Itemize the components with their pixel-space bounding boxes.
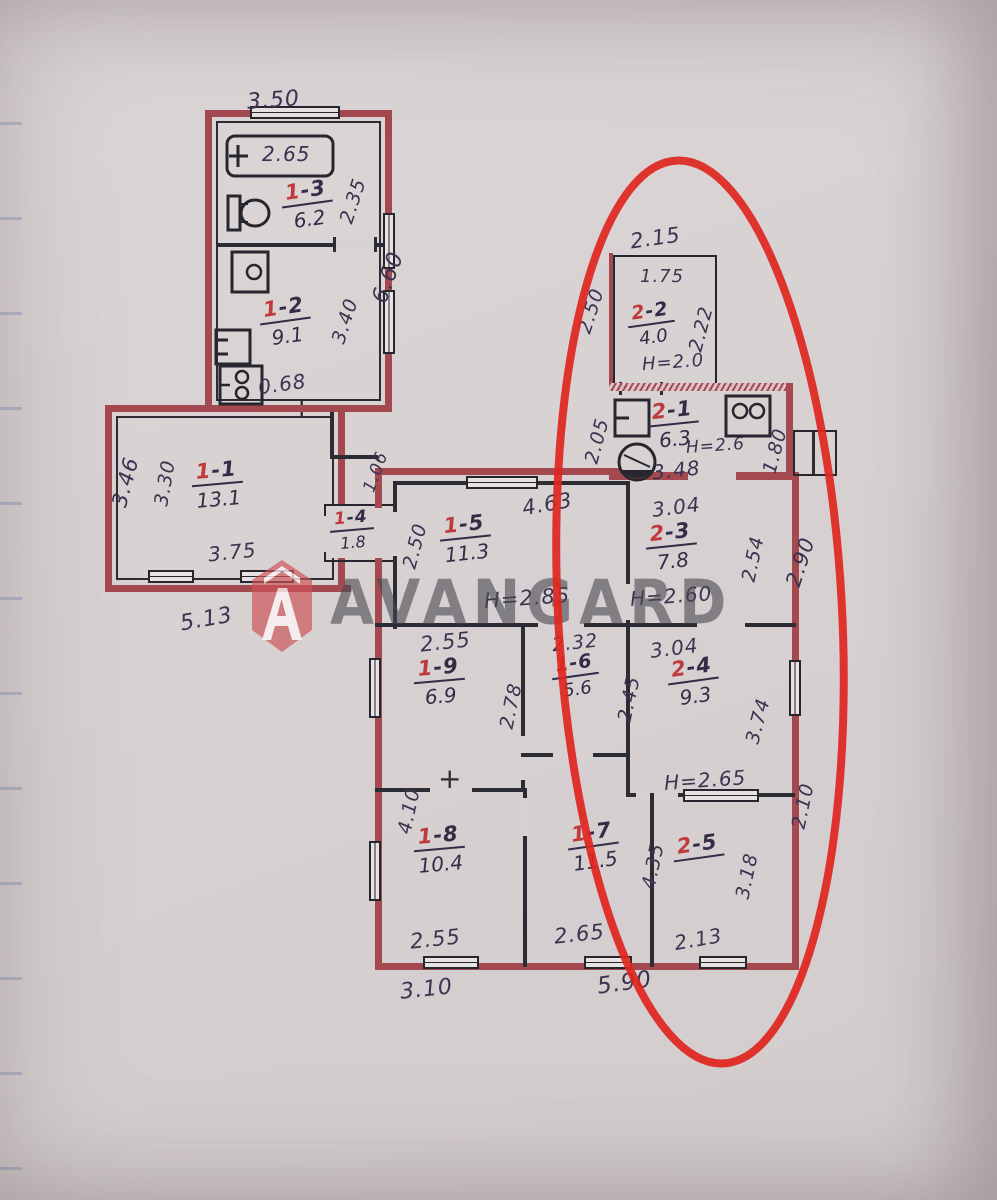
dim-label: 5.90: [595, 966, 653, 999]
window-symbol: [584, 956, 632, 969]
door-opening: [373, 508, 384, 558]
door-tick: [374, 237, 377, 252]
dim-label: 3.18: [732, 851, 763, 901]
dim-label: 2.50: [574, 286, 609, 337]
door-opening: [391, 512, 399, 556]
wall: [338, 405, 345, 592]
avangard-logo-icon: [250, 558, 314, 654]
window-symbol: [148, 570, 194, 583]
door-swing-mark: +: [438, 762, 461, 795]
door-opening: [519, 736, 527, 780]
door-tick: [333, 237, 336, 252]
dim-label: 1.75: [640, 266, 684, 287]
chimney-line: [812, 432, 815, 474]
dim-label: 2.15: [629, 223, 683, 254]
window-symbol: [699, 956, 747, 969]
window-symbol: [369, 841, 381, 901]
room-label-1-4: 1-4 1.8: [328, 506, 375, 554]
notebook-ruled-lines: [0, 30, 22, 1180]
dim-label: 3.48: [651, 456, 702, 485]
window-symbol: [423, 956, 479, 969]
room-label-1-1: 1-1 13.1: [190, 456, 245, 513]
dim-label: 3.50: [246, 86, 301, 115]
room-label-2-1: 2-1 6.3: [645, 395, 701, 453]
dim-label: 2.45: [614, 674, 645, 724]
room-label-1-6: 1-6 5.6: [549, 649, 603, 703]
room-label-1-2: 1-2 9.1: [257, 292, 315, 352]
window-symbol: [789, 660, 801, 716]
dim-label: 4.63: [520, 488, 574, 520]
room-label-2-2: 2-2 4.0: [625, 297, 679, 351]
dim-label: 2.65: [553, 919, 606, 948]
toilet-icon: [226, 190, 272, 236]
dim-label: 2.65: [262, 142, 311, 166]
dim-label: 3.10: [399, 974, 454, 1004]
window-symbol: [466, 476, 538, 489]
wall: [105, 585, 351, 592]
room-label-1-7: 1-7 11.5: [565, 817, 623, 877]
dim-label: 4.35: [638, 841, 669, 891]
room-label-1-3: 1-3 6.2: [279, 175, 337, 235]
dim-label: 2.13: [672, 923, 724, 955]
dim-label: 5.13: [178, 603, 235, 637]
stove-icon: [724, 394, 772, 438]
wall: [375, 468, 620, 475]
wall: [105, 405, 345, 412]
wall-partition: [330, 412, 334, 458]
door-opening: [320, 516, 329, 552]
height-label: H=2.0: [641, 350, 705, 375]
dim-label: 2.54: [738, 534, 769, 584]
washbasin-icon: [214, 326, 256, 368]
door-opening: [336, 241, 374, 249]
room-label-1-8: 1-8 10.4: [412, 821, 467, 878]
window-symbol: [369, 658, 381, 718]
room-label-1-5: 1-5 11.3: [437, 509, 493, 567]
sink-icon: [230, 250, 270, 294]
room-label-2-4: 2-4 9.3: [665, 652, 723, 712]
room-label-2-5: 2-5: [670, 829, 724, 865]
room-label-1-9: 1-9 6.9: [412, 653, 467, 710]
dim-label: 3.74: [742, 696, 775, 746]
door-opening: [553, 751, 593, 759]
wall: [205, 110, 212, 412]
chimney-protrusion: [793, 430, 837, 476]
wall-hatched: [609, 383, 793, 391]
dim-label: 2.50: [399, 521, 432, 571]
dim-label: 2.90: [781, 534, 820, 590]
dim-label: 2.05: [581, 416, 614, 466]
door-opening: [521, 798, 529, 836]
avangard-watermark: AVANGARD: [330, 567, 732, 638]
dim-label: 2.55: [409, 924, 462, 953]
floor-plan-scan: + +: [0, 0, 997, 1200]
